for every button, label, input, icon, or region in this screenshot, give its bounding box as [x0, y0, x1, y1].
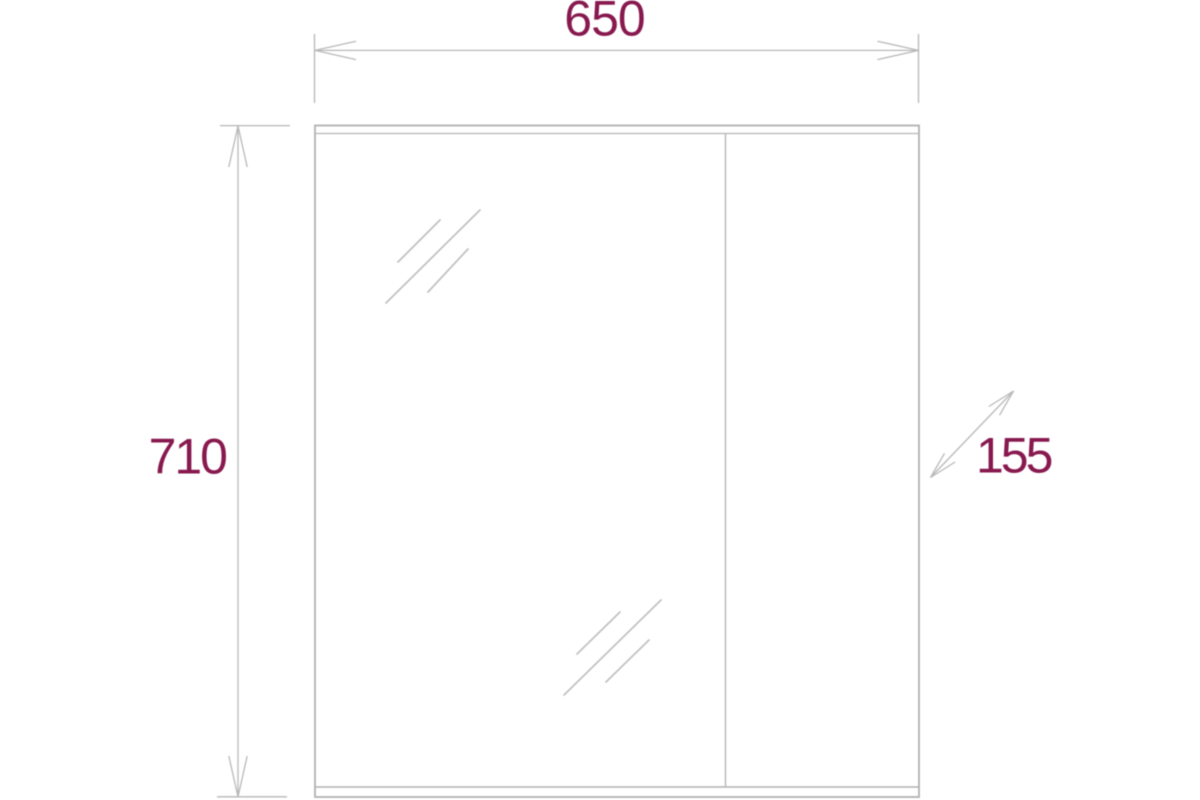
svg-text:650: 650 — [564, 0, 644, 46]
svg-text:155: 155 — [976, 428, 1052, 484]
svg-text:710: 710 — [149, 429, 227, 485]
